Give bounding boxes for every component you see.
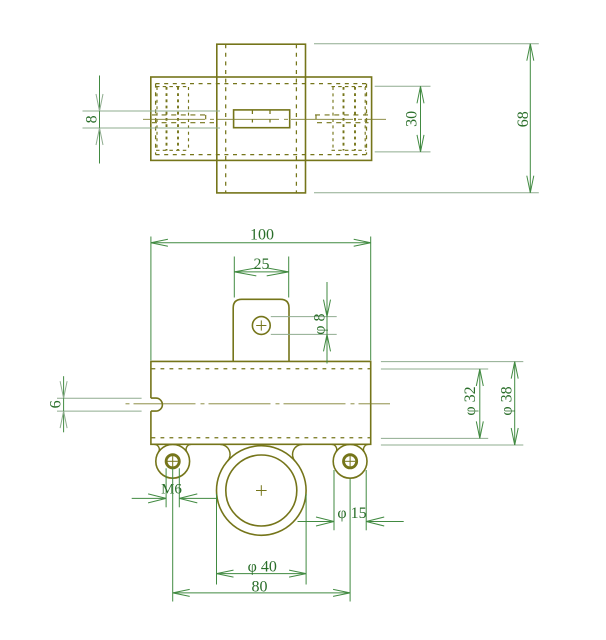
svg-text:68: 68 <box>515 111 532 127</box>
svg-text:100: 100 <box>250 227 274 244</box>
svg-text:M6: M6 <box>161 482 182 498</box>
svg-text:30: 30 <box>404 111 421 127</box>
svg-text:80: 80 <box>252 578 268 595</box>
svg-text:φ 8: φ 8 <box>311 313 328 334</box>
svg-text:φ 15: φ 15 <box>337 505 366 522</box>
svg-text:6: 6 <box>48 400 65 408</box>
svg-text:8: 8 <box>83 115 100 123</box>
svg-text:φ 32: φ 32 <box>462 386 479 415</box>
svg-text:25: 25 <box>254 256 270 273</box>
svg-text:φ 40: φ 40 <box>248 559 277 576</box>
svg-text:φ 38: φ 38 <box>498 386 515 415</box>
